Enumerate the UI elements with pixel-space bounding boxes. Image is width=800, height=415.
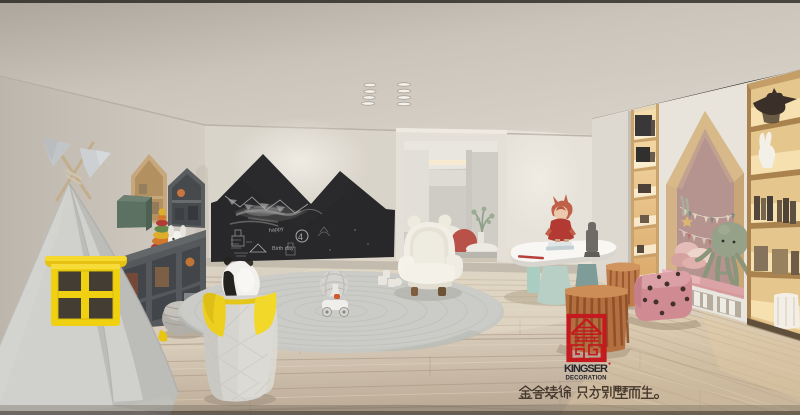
svg-text:DECORATION: DECORATION	[566, 376, 607, 382]
svg-text:KINGSER: KINGSER	[564, 363, 608, 375]
svg-text:4: 4	[298, 232, 303, 242]
